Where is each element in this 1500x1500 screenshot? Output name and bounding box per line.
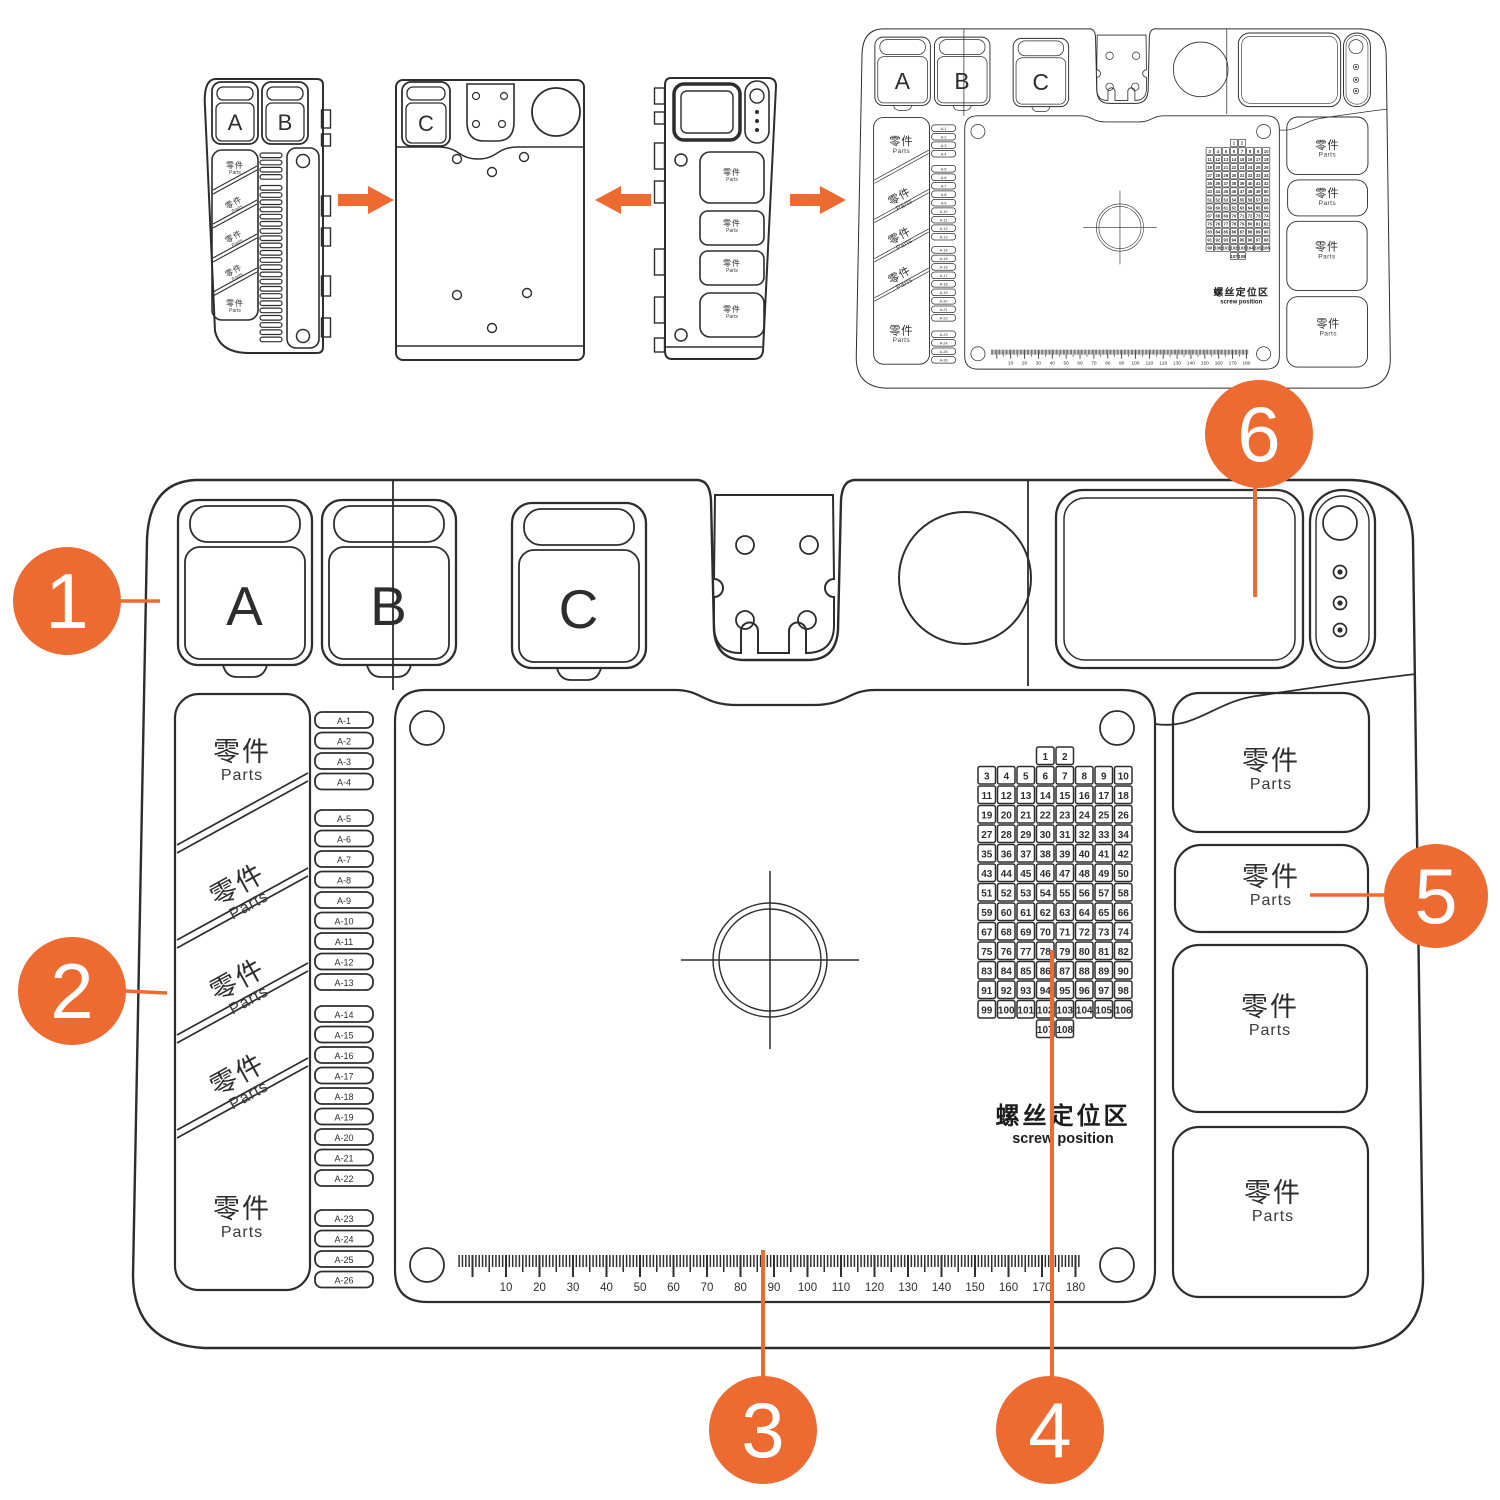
callout-2: 2: [18, 937, 167, 1045]
mini-tray-c-label: C: [418, 111, 434, 136]
callout-4-number: 4: [1028, 1386, 1071, 1474]
mini-slot: [260, 160, 282, 165]
callout-1-number: 1: [45, 557, 88, 645]
mini-slot: [260, 214, 282, 219]
mini-slot: [260, 229, 282, 234]
arrow-right-icon: [790, 186, 846, 214]
mini-slot: [260, 287, 282, 292]
mini-tray-c: C: [402, 82, 450, 146]
callout-6-number: 6: [1237, 390, 1280, 478]
mini-slot: [260, 330, 282, 335]
mini-slot: [260, 294, 282, 299]
mini-cup-recess: [532, 88, 580, 136]
mini-slot: [260, 279, 282, 284]
mini-slot: [260, 251, 282, 256]
mini-tray-a-label: A: [228, 110, 243, 135]
mini-slot: [260, 153, 282, 158]
mini-right-trays: [700, 152, 764, 337]
mini-right-rail: [287, 148, 319, 348]
callout-4: 4: [996, 950, 1104, 1484]
mini-slot: [260, 167, 282, 172]
mini-slot: [260, 265, 282, 270]
assembly-piece-ab: A B: [205, 79, 331, 353]
assembly-piece-right: [655, 78, 777, 359]
arrow-right-icon: [338, 186, 394, 214]
mini-slot: [260, 243, 282, 248]
mini-slot: [260, 207, 282, 212]
mini-slot: [260, 323, 282, 328]
repair-mat-diagram: 零件 Parts 零件 Parts A B C: [0, 0, 1500, 1500]
mini-slot: [260, 301, 282, 306]
callout-2-number: 2: [50, 947, 93, 1035]
mini-slot: [260, 316, 282, 321]
mini-tray-a: A: [212, 82, 258, 144]
mini-slot: [260, 272, 282, 277]
product-diagram-page: 零件 Parts 零件 Parts A B C: [0, 0, 1500, 1500]
mini-storage-tray: [674, 84, 740, 140]
callout-3-number: 3: [741, 1386, 784, 1474]
callout-6: 6: [1205, 380, 1313, 597]
assembly-piece-c: C: [396, 80, 584, 360]
mini-left-strip: [212, 150, 258, 320]
mini-slot: [260, 200, 282, 205]
mini-slot: [260, 222, 282, 227]
mini-slot: [260, 193, 282, 198]
callout-5-number: 5: [1414, 852, 1457, 940]
mini-bracket: [467, 84, 514, 141]
mini-slot: [260, 175, 282, 180]
mini-slot: [260, 337, 282, 342]
mini-slot: [260, 258, 282, 263]
mini-slot-comb: [260, 153, 282, 342]
mini-slot: [260, 308, 282, 313]
mini-slot: [260, 236, 282, 241]
mini-assembled-mat: [856, 29, 1390, 388]
mini-slot: [260, 186, 282, 191]
mini-tool-holder: [745, 81, 769, 143]
mini-tray-b-label: B: [278, 110, 293, 135]
arrow-left-icon: [595, 186, 651, 214]
mini-tray-b: B: [262, 82, 308, 144]
main-mat: [133, 480, 1423, 1348]
callout-1: 1: [13, 547, 160, 655]
